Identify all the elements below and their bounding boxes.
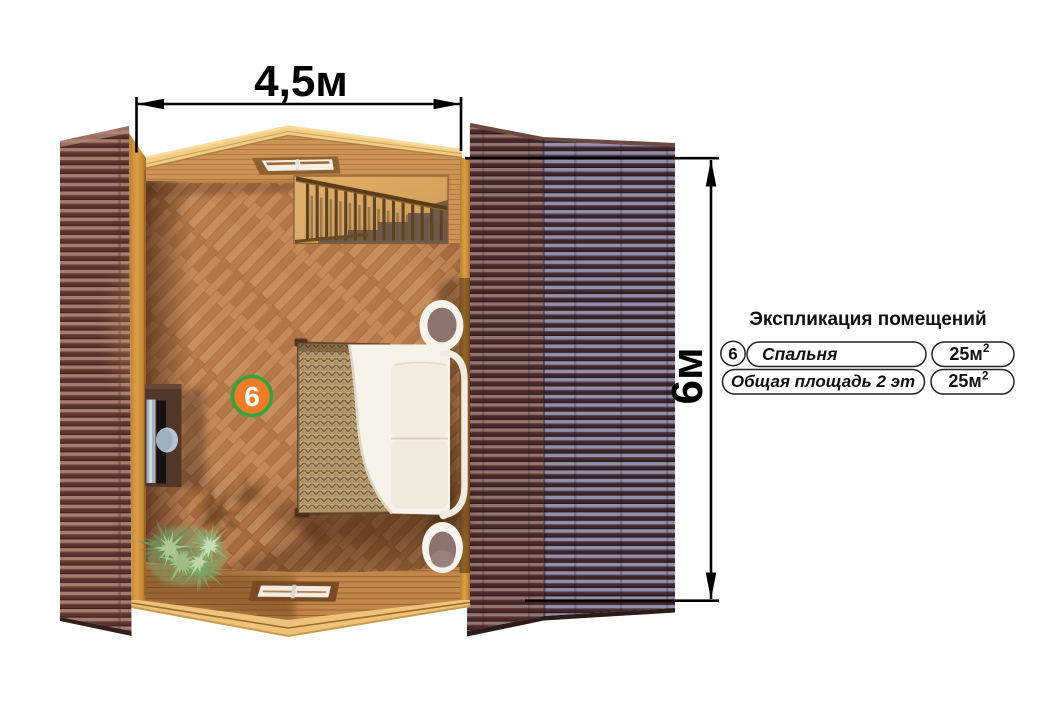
svg-text:Общая площадь 2 эт: Общая площадь 2 эт — [731, 372, 915, 391]
svg-text:25м: 25м — [949, 344, 982, 364]
svg-text:Спальня: Спальня — [762, 344, 837, 364]
svg-text:6: 6 — [244, 381, 260, 412]
svg-text:2: 2 — [983, 343, 989, 355]
svg-text:6: 6 — [728, 345, 737, 364]
svg-text:Экспликация помещений: Экспликация помещений — [749, 309, 986, 330]
svg-text:6м: 6м — [663, 347, 712, 404]
svg-text:4,5м: 4,5м — [254, 57, 348, 106]
svg-text:2: 2 — [982, 371, 988, 383]
svg-text:25м: 25м — [948, 371, 981, 391]
